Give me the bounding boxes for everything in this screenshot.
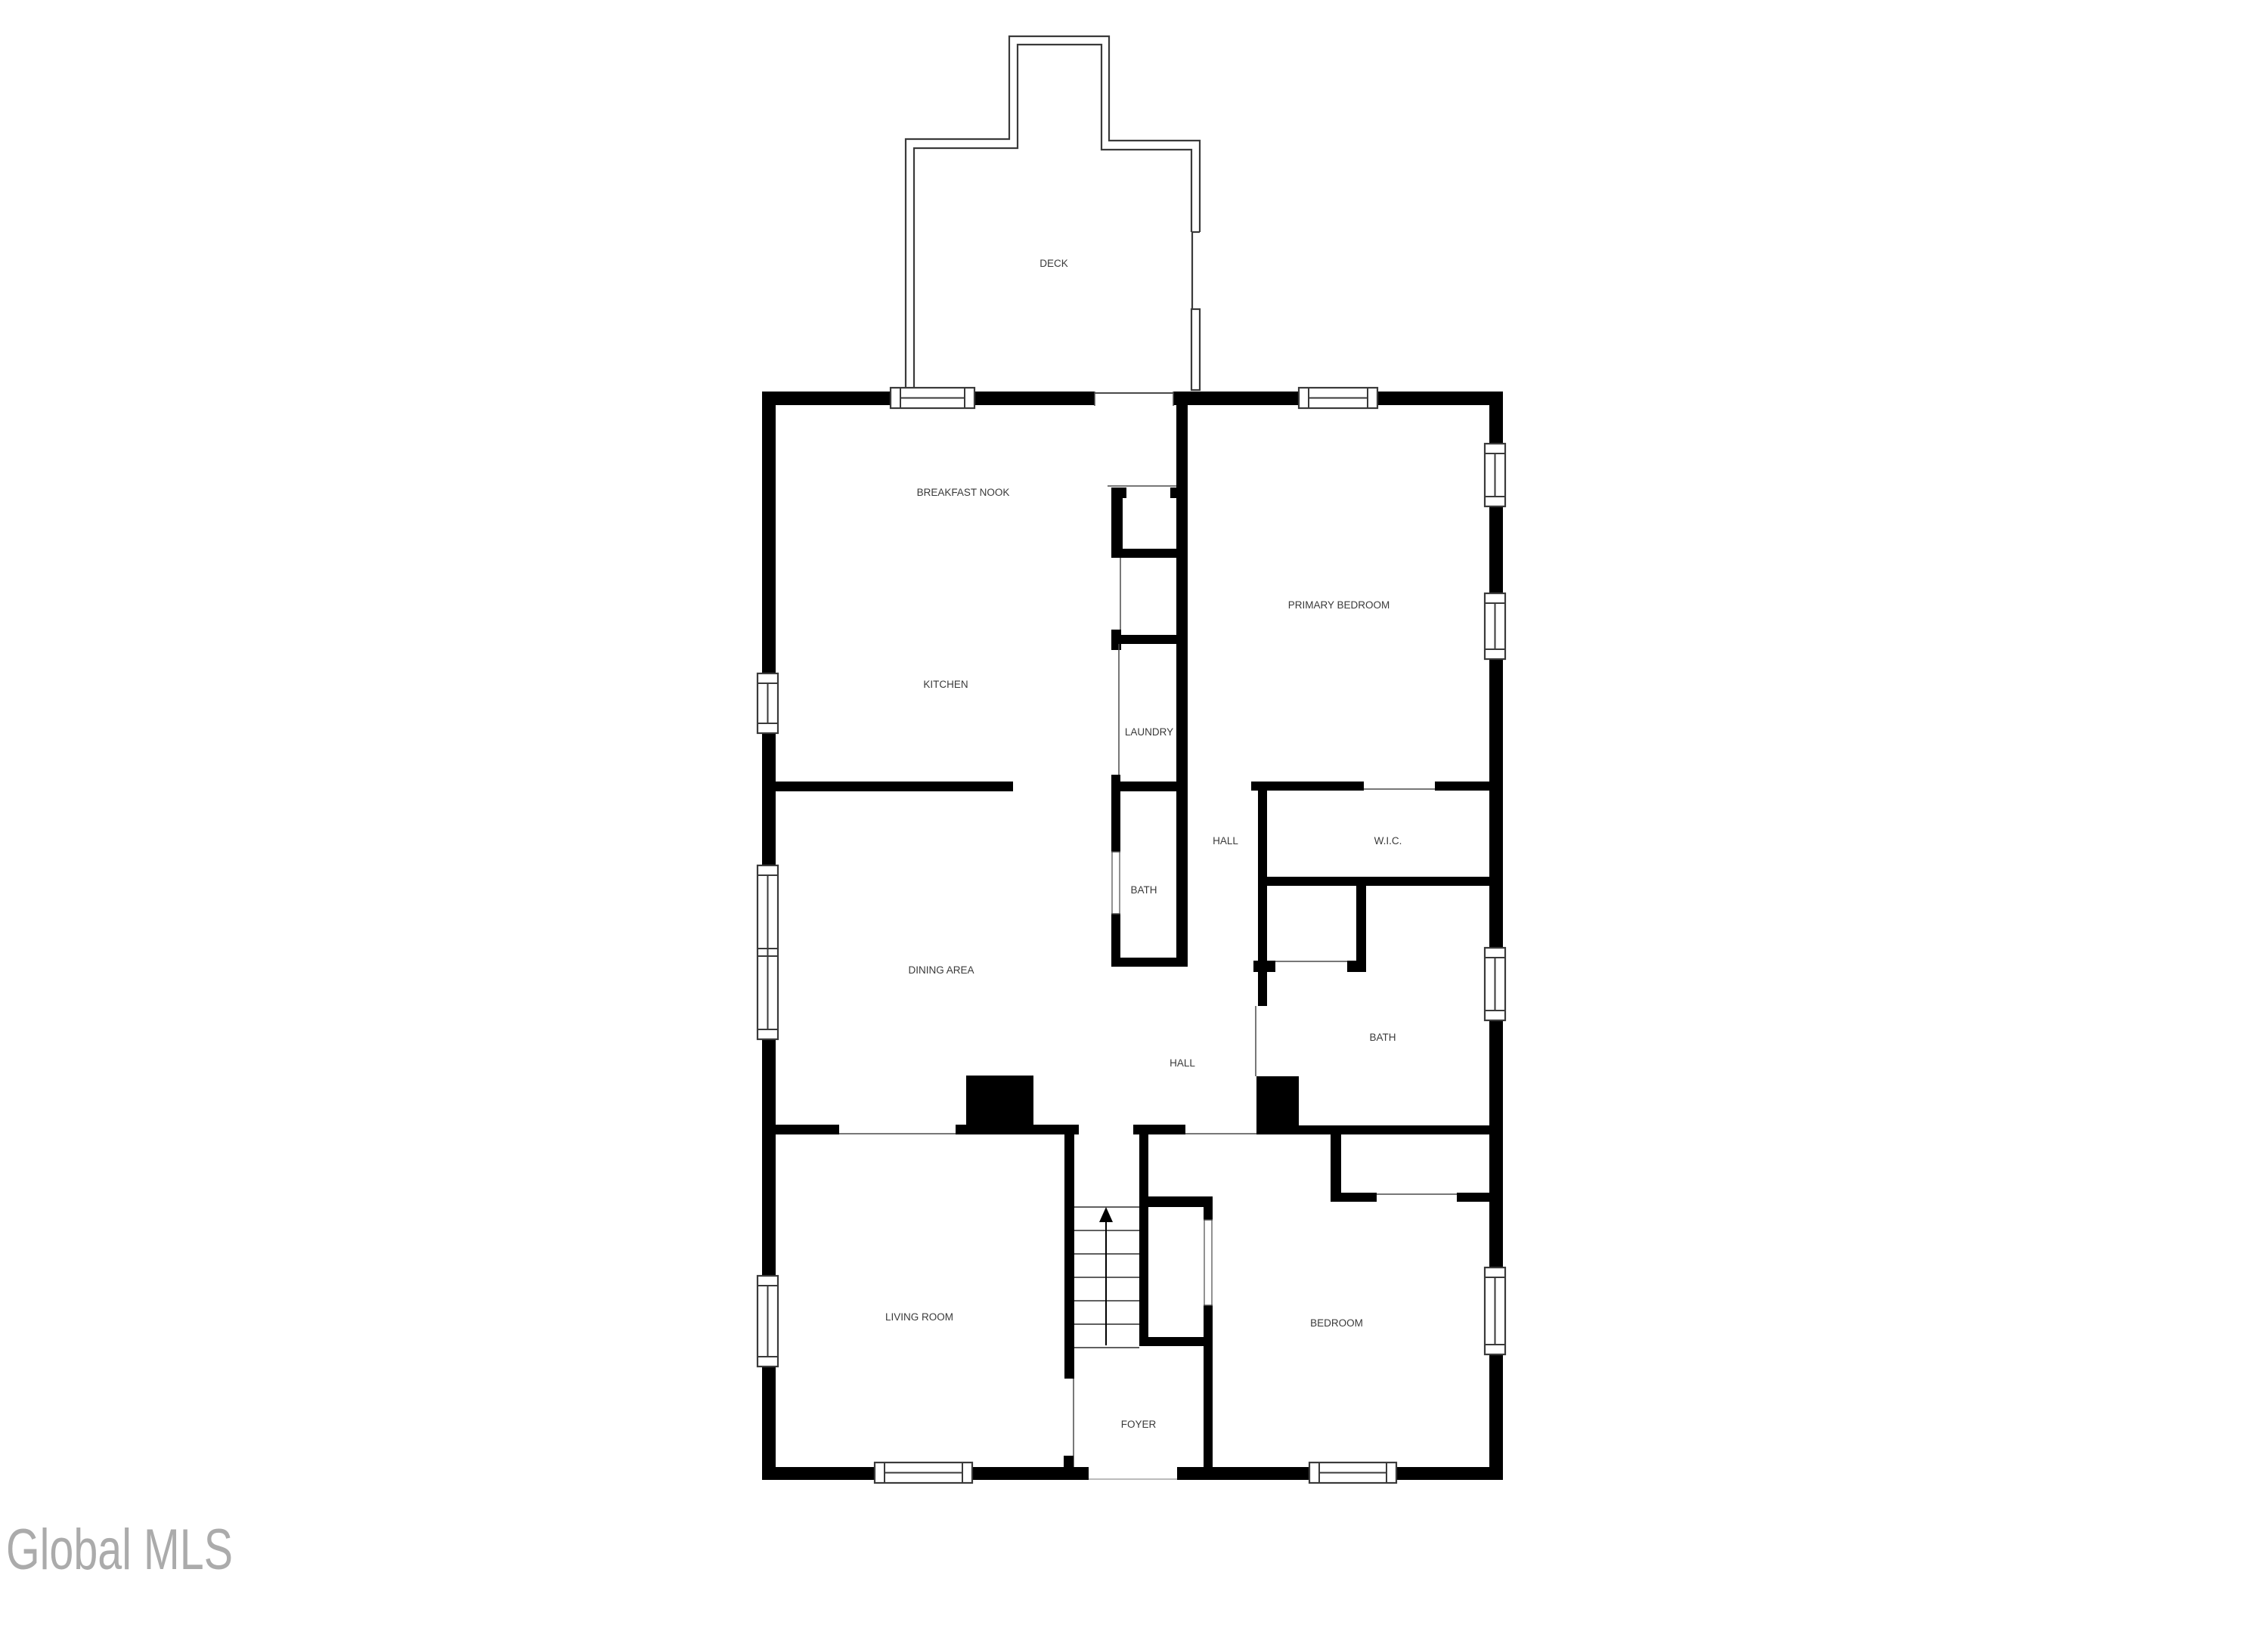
svg-text:Global MLS: Global MLS [6, 1518, 233, 1582]
svg-text:BATH: BATH [1130, 884, 1157, 896]
svg-text:PRIMARY BEDROOM: PRIMARY BEDROOM [1288, 599, 1390, 611]
svg-text:LIVING ROOM: LIVING ROOM [885, 1311, 953, 1323]
svg-text:BEDROOM: BEDROOM [1310, 1317, 1363, 1329]
svg-text:DINING AREA: DINING AREA [908, 964, 974, 976]
svg-text:BATH: BATH [1369, 1032, 1396, 1043]
svg-text:KITCHEN: KITCHEN [923, 679, 968, 690]
svg-text:FOYER: FOYER [1121, 1419, 1157, 1430]
svg-text:HALL: HALL [1213, 835, 1238, 847]
svg-text:LAUNDRY: LAUNDRY [1125, 726, 1173, 738]
svg-text:DECK: DECK [1039, 258, 1068, 269]
svg-text:BREAKFAST NOOK: BREAKFAST NOOK [917, 487, 1010, 498]
svg-text:W.I.C.: W.I.C. [1374, 835, 1402, 847]
svg-text:HALL: HALL [1170, 1057, 1195, 1069]
